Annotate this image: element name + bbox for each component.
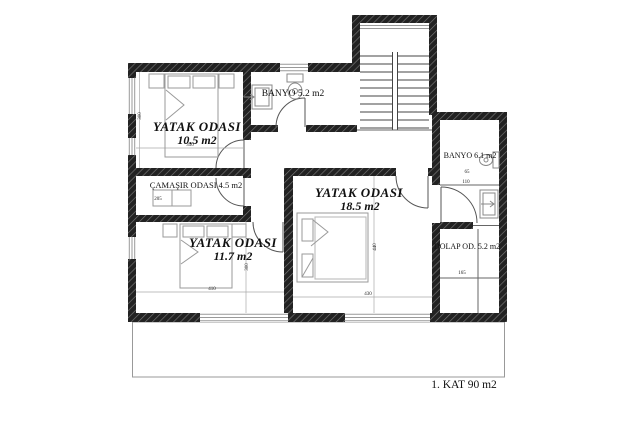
closet-label: DOLAP OD. 5.2 m2 (434, 242, 500, 251)
dim-laundry-width: 205 (154, 197, 162, 202)
bedroom2-area: 11.7 m2 (214, 249, 253, 263)
room-labels: YATAK ODASI 10.5 m2 BANYO 5.2 m2 ÇAMAŞIR… (150, 89, 500, 391)
bedroom1-name: YATAK ODASI (153, 119, 241, 134)
laundry-label: ÇAMAŞIR ODASI 4.5 m2 (150, 180, 243, 190)
floor-plan-drawing: YATAK ODASI 10.5 m2 BANYO 5.2 m2 ÇAMAŞIR… (0, 0, 640, 429)
floor-label: 1. KAT 90 m2 (431, 379, 497, 391)
dim-bathroom2-b: 110 (462, 180, 470, 185)
bedroom1-area: 10.5 m2 (177, 133, 216, 147)
floor-plan-page: YATAK ODASI 10.5 m2 BANYO 5.2 m2 ÇAMAŞIR… (0, 0, 640, 429)
bedroom3-area: 18.5 m2 (340, 199, 379, 213)
staircase (357, 52, 432, 130)
dim-bedroom3-depth: 440 (373, 243, 378, 251)
bed-bedroom3 (297, 213, 368, 282)
bedroom3-name: YATAK ODASI (315, 185, 403, 200)
bedroom2-name: YATAK ODASI (189, 235, 277, 250)
dim-bedroom1-depth: 300 (138, 112, 143, 120)
dim-bedroom1-width: 350 (186, 143, 194, 148)
dim-bedroom2-depth: 300 (245, 263, 250, 271)
dim-bathroom2-a: 65 (465, 170, 471, 175)
bathroom2-label: BANYO 6.1 m2 (444, 151, 497, 160)
dim-bedroom3-width: 430 (364, 292, 372, 297)
bathroom1-label: BANYO 5.2 m2 (262, 89, 325, 99)
dim-bedroom2-width: 410 (208, 287, 216, 292)
terrace-outline (133, 322, 505, 377)
dim-closet-a: 165 (458, 271, 466, 276)
shower-bathroom2 (480, 190, 498, 218)
